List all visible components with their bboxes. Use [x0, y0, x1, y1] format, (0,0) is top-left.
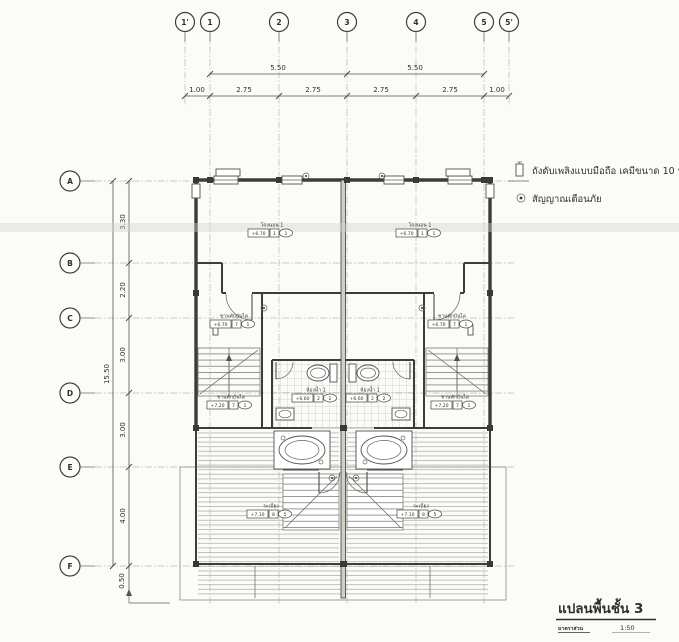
- dim-label: 2.75: [305, 86, 321, 94]
- dim-label: 1.00: [489, 86, 505, 94]
- window-symbol: [192, 184, 200, 198]
- room-name: โถงนอน 1: [409, 222, 432, 229]
- grid-bubble-5: 5: [475, 13, 494, 43]
- grid-bubble-E: E: [60, 457, 95, 477]
- title-block: แปลนพื้นชั้น 3 มาตราส่วน 1:50: [556, 598, 656, 633]
- dim-label: 5.50: [270, 64, 286, 72]
- room-level: +7.10: [250, 512, 264, 518]
- fire-extinguisher-icon: [516, 162, 523, 176]
- room-floor-code: 1: [273, 231, 276, 237]
- grid-bubble-3: 3: [338, 13, 357, 43]
- stair-left: [198, 348, 260, 396]
- room-floor-code: 2: [371, 396, 374, 402]
- dim-label: 3.00: [119, 422, 127, 438]
- room-floor-code: 8: [272, 512, 275, 518]
- grid-row-label: F: [67, 562, 72, 571]
- legend-item-alarm: สัญญาณเตือนภัย: [517, 194, 602, 205]
- room-name: ระเบียง: [263, 503, 279, 510]
- room-floor-code: 7: [456, 403, 459, 409]
- party-wall: [341, 180, 346, 598]
- grid-bubble-1: 1: [201, 13, 220, 43]
- floor-plan-sheet: 1' 1 2 3 4 5 5' A: [0, 0, 679, 642]
- tub-left: [274, 431, 330, 469]
- stair-right: [426, 348, 488, 396]
- room-circ-code: 2: [383, 396, 386, 402]
- scale-label: มาตราส่วน: [558, 625, 583, 632]
- room-circ-code: 1: [247, 322, 250, 328]
- dim-label: 1.00: [189, 86, 205, 94]
- planter-box: [446, 169, 470, 176]
- grid-bubble-F: F: [60, 556, 95, 576]
- grid-row-label: D: [67, 389, 73, 398]
- grid-bubble-B: B: [60, 253, 95, 273]
- room-name: ชานพักบันได: [438, 313, 466, 320]
- room-floor-code: 2: [317, 396, 320, 402]
- room-level: +6.70: [213, 322, 227, 328]
- room-name: โถงนอน 1: [261, 222, 284, 229]
- room-circ-code: 1: [465, 322, 468, 328]
- room-floor-code: 8: [422, 512, 425, 518]
- alarm-icon: [517, 194, 525, 202]
- terrace-stair-right: [347, 474, 403, 530]
- grid-bubble-5p: 5': [500, 13, 519, 43]
- grid-col-label: 2: [276, 18, 281, 27]
- column-grid-bubbles: 1' 1 2 3 4 5 5': [176, 13, 519, 43]
- grid-bubble-D: D: [60, 383, 95, 403]
- scale-value: 1:50: [620, 624, 635, 632]
- legend: ถังดับเพลิงแบบมือถือ เคมีขนาด 10 ป สัญญา…: [508, 162, 679, 205]
- room-tag-landing-top-left: ชานพักบันได +6.70 7 1: [210, 313, 255, 329]
- room-circ-code: 1: [433, 231, 436, 237]
- room-tag-landing-top-right: ชานพักบันได +6.70 7 1: [428, 313, 473, 329]
- dim-arrow: [126, 589, 132, 596]
- grid-col-label: 3: [344, 18, 349, 27]
- room-circ-code: 1: [285, 231, 288, 237]
- grid-bubble-1p: 1': [176, 13, 195, 43]
- room-floor-code: 7: [232, 403, 235, 409]
- dim-label: 4.00: [119, 508, 127, 524]
- room-circ-code: 5: [434, 512, 437, 518]
- room-level: +6.70: [251, 231, 265, 237]
- dim-label: 2.75: [236, 86, 252, 94]
- room-level: +6.60: [295, 396, 309, 402]
- room-name: ชานพักบันได: [220, 313, 248, 320]
- room-circ-code: 1: [244, 403, 247, 409]
- dim-label: 5.50: [407, 64, 423, 72]
- drawing-title: แปลนพื้นชั้น 3: [558, 598, 643, 617]
- grid-row-label: B: [67, 259, 73, 268]
- dim-label: 3.00: [119, 347, 127, 363]
- room-level: +6.70: [399, 231, 413, 237]
- room-level: +7.20: [210, 403, 224, 409]
- terrace-stair-left: [283, 474, 339, 530]
- dim-label: 2.20: [119, 282, 127, 298]
- legend-alarm-label: สัญญาณเตือนภัย: [532, 194, 602, 205]
- toilet-tank: [330, 364, 337, 382]
- room-name: ชานพักบันได: [441, 394, 469, 401]
- room-name: ระเบียง: [413, 503, 429, 510]
- room-level: +7.20: [434, 403, 448, 409]
- room-circ-code: 5: [284, 512, 287, 518]
- floor-plan-drawing: 1' 1 2 3 4 5 5' A: [0, 0, 679, 642]
- grid-col-label: 5': [505, 18, 513, 27]
- grid-bubble-4: 4: [407, 13, 426, 43]
- window-symbol: [486, 184, 494, 198]
- grid-col-label: 4: [413, 18, 418, 27]
- room-floor-code: 7: [453, 322, 456, 328]
- toilet-tank: [349, 364, 356, 382]
- room-floor-code: 1: [421, 231, 424, 237]
- room-level: +7.10: [400, 512, 414, 518]
- alarm-symbol: [303, 173, 309, 179]
- room-circ-code: 2: [329, 396, 332, 402]
- room-level: +6.70: [431, 322, 445, 328]
- planter-box: [216, 169, 240, 176]
- grid-row-label: A: [67, 177, 73, 186]
- legend-extinguisher-label: ถังดับเพลิงแบบมือถือ เคมีขนาด 10 ป: [532, 165, 679, 177]
- grid-col-label: 5: [481, 18, 486, 27]
- room-floor-code: 7: [235, 322, 238, 328]
- dim-label: 15.50: [103, 364, 111, 384]
- room-level: +6.60: [349, 396, 363, 402]
- room-name: ชานพักบันได: [217, 394, 245, 401]
- scan-artifact-band: [0, 223, 679, 232]
- grid-row-label: C: [67, 314, 73, 323]
- grid-bubble-2: 2: [270, 13, 289, 43]
- tub-right: [356, 431, 412, 469]
- legend-item-extinguisher: ถังดับเพลิงแบบมือถือ เคมีขนาด 10 ป: [508, 162, 679, 181]
- grid-bubble-A: A: [60, 171, 95, 191]
- left-dimensions: 15.50 3.30 2.20 3.00 3.00 4.00 0.50: [103, 178, 170, 603]
- dim-label: 2.75: [442, 86, 458, 94]
- room-circ-code: 1: [468, 403, 471, 409]
- grid-col-label: 1': [181, 18, 189, 27]
- dim-label: 0.50: [118, 573, 126, 589]
- grid-bubble-C: C: [60, 308, 95, 328]
- grid-row-label: E: [67, 463, 72, 472]
- dim-label: 2.75: [373, 86, 389, 94]
- grid-col-label: 1: [207, 18, 212, 27]
